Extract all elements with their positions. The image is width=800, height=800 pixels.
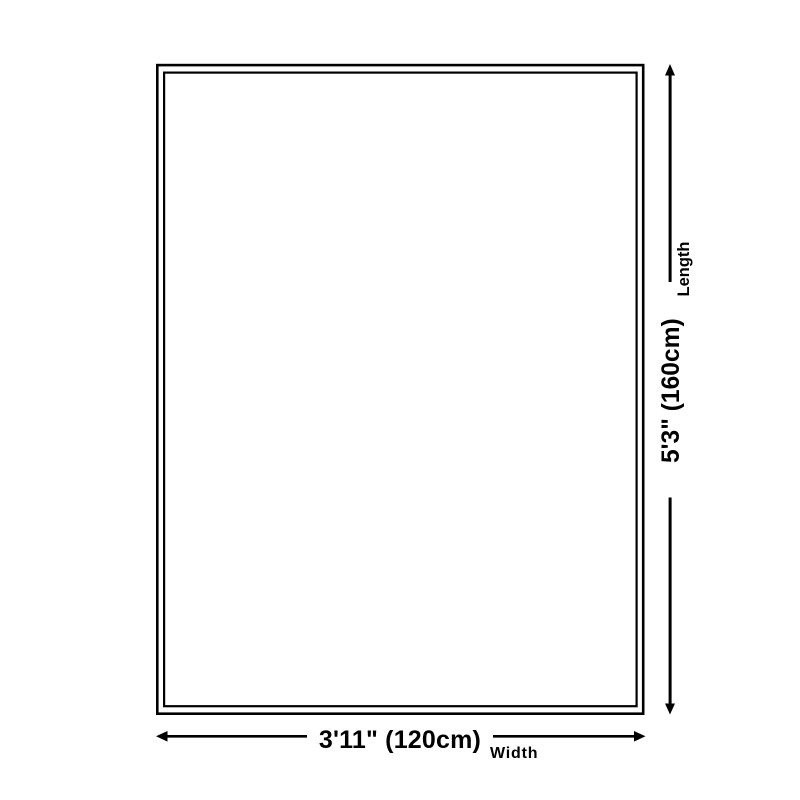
- svg-text:Length: Length: [675, 242, 693, 297]
- svg-text:3'11" (120cm): 3'11" (120cm): [319, 726, 481, 754]
- svg-text:5'3" (160cm): 5'3" (160cm): [658, 318, 685, 463]
- svg-text:Width: Width: [490, 745, 538, 762]
